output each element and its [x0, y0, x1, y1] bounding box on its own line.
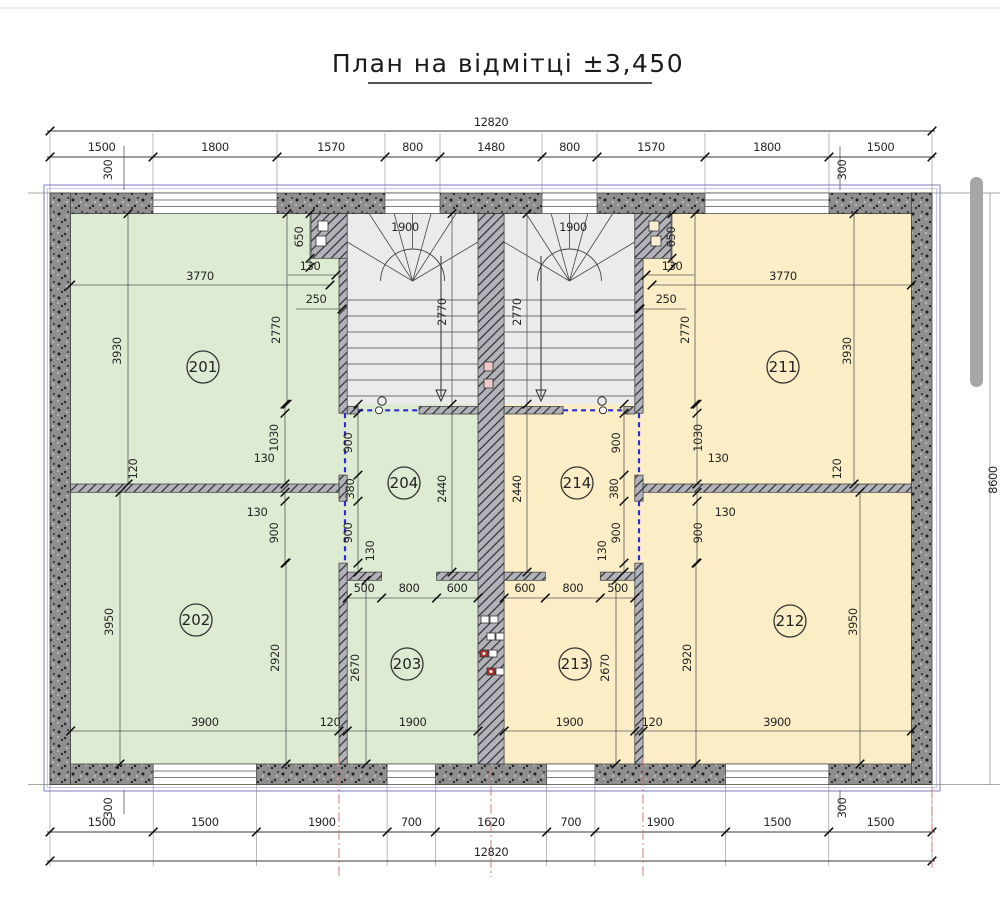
dim-label: 3950 — [846, 608, 860, 636]
dim-label: 130 — [363, 541, 377, 562]
floor-plan-drawing: План на відмітці ±3,450 — [0, 0, 1000, 897]
dim-label: 1800 — [753, 140, 781, 154]
dim-label: 900 — [609, 523, 623, 544]
dim-label: 2440 — [510, 475, 524, 503]
dim-label: 1570 — [317, 140, 345, 154]
dim-label: 1900 — [399, 715, 427, 729]
dim-label: 500 — [354, 581, 375, 595]
dim-label: 1620 — [477, 815, 505, 829]
dim-label: 1500 — [763, 815, 791, 829]
svg-text:202: 202 — [182, 611, 211, 629]
dim-label: 650 — [292, 227, 306, 248]
dim-label: 3930 — [110, 337, 124, 365]
dim-label: 1900 — [556, 715, 584, 729]
dim-label: 3930 — [840, 337, 854, 365]
dim-label: 1570 — [637, 140, 665, 154]
dim-label: 900 — [341, 433, 355, 454]
svg-text:203: 203 — [393, 655, 422, 673]
dim-label: 3770 — [186, 269, 214, 283]
dim-label: 900 — [267, 523, 281, 544]
dim-label: 3900 — [191, 715, 219, 729]
dim-label: 700 — [401, 815, 422, 829]
dim-label: 1800 — [201, 140, 229, 154]
svg-text:213: 213 — [561, 655, 590, 673]
page-title: План на відмітці ±3,450 — [332, 49, 684, 78]
dim-overall-width-bottom: 12820 — [474, 845, 509, 859]
dim-label: 120 — [320, 715, 341, 729]
dim-label: 250 — [306, 292, 327, 306]
dim-label: 3900 — [763, 715, 791, 729]
dim-label: 2920 — [268, 644, 282, 672]
dim-overall-width-top: 12820 — [474, 115, 509, 129]
dim-label-stair-width: 1900 — [559, 220, 587, 234]
dim-label: 1030 — [267, 424, 281, 452]
dim-label: 1500 — [191, 815, 219, 829]
dim-label: 500 — [607, 581, 628, 595]
dim-label: 2770 — [269, 316, 283, 344]
dim-label: 1480 — [477, 140, 505, 154]
window — [153, 193, 277, 214]
dim-label: 3950 — [102, 608, 116, 636]
dim-label: 120 — [126, 459, 140, 480]
dim-label: 2770 — [678, 316, 692, 344]
dim-label: 800 — [399, 581, 420, 595]
window — [547, 764, 595, 785]
wall-201-202 — [71, 484, 339, 492]
dim-label-stair-depth: 2770 — [510, 298, 524, 326]
dim-label: 300 — [101, 160, 115, 181]
dim-label: 700 — [560, 815, 581, 829]
dim-label: 130 — [708, 451, 729, 465]
svg-text:201: 201 — [189, 358, 218, 376]
dim-label: 130 — [254, 451, 275, 465]
svg-text:204: 204 — [390, 474, 419, 492]
dim-label: 250 — [656, 292, 677, 306]
dim-label: 300 — [835, 798, 849, 819]
window — [542, 193, 597, 214]
dim-label: 130 — [595, 541, 609, 562]
window — [726, 764, 829, 785]
dim-label-stair-depth: 2770 — [435, 298, 449, 326]
dim-label: 650 — [664, 227, 678, 248]
door-hinge-symbol — [600, 407, 607, 414]
dim-label: 130 — [300, 259, 321, 273]
dim-label-stair-width: 1900 — [391, 220, 419, 234]
dim-label: 2920 — [680, 644, 694, 672]
dim-label: 300 — [835, 160, 849, 181]
dim-label: 1030 — [691, 424, 705, 452]
door-hinge-symbol — [376, 407, 383, 414]
dim-label: 380 — [607, 479, 621, 500]
dim-label: 800 — [562, 581, 583, 595]
window — [385, 193, 440, 214]
scrollbar-thumb[interactable] — [970, 177, 983, 387]
dim-label: 600 — [447, 581, 468, 595]
dim-label: 1500 — [867, 815, 895, 829]
dim-label: 900 — [609, 433, 623, 454]
dim-label: 1900 — [308, 815, 336, 829]
dim-label: 130 — [662, 259, 683, 273]
window — [705, 193, 829, 214]
dim-label: 300 — [101, 798, 115, 819]
floor-plan-page: План на відмітці ±3,450 — [0, 0, 1000, 897]
svg-text:211: 211 — [769, 358, 798, 376]
wall-211-212 — [643, 484, 911, 492]
dim-label: 120 — [642, 715, 663, 729]
svg-text:212: 212 — [776, 612, 805, 630]
dim-label: 800 — [402, 140, 423, 154]
dim-label: 1500 — [867, 140, 895, 154]
dim-label: 900 — [691, 523, 705, 544]
dim-label: 3770 — [769, 269, 797, 283]
dim-label: 130 — [715, 505, 736, 519]
dim-overall-height: 8600 — [986, 466, 1000, 494]
dim-label: 380 — [343, 479, 357, 500]
window — [387, 764, 435, 785]
svg-text:214: 214 — [563, 474, 592, 492]
dim-label: 900 — [341, 523, 355, 544]
dim-label: 1500 — [88, 140, 116, 154]
dim-label: 130 — [247, 505, 268, 519]
dim-label: 2440 — [435, 475, 449, 503]
dim-label: 1900 — [646, 815, 674, 829]
dim-label: 600 — [514, 581, 535, 595]
window — [153, 764, 256, 785]
dim-label: 800 — [559, 140, 580, 154]
dim-label: 120 — [830, 459, 844, 480]
dim-label: 2670 — [598, 654, 612, 682]
central-wall — [478, 214, 504, 764]
dim-label: 2670 — [348, 654, 362, 682]
